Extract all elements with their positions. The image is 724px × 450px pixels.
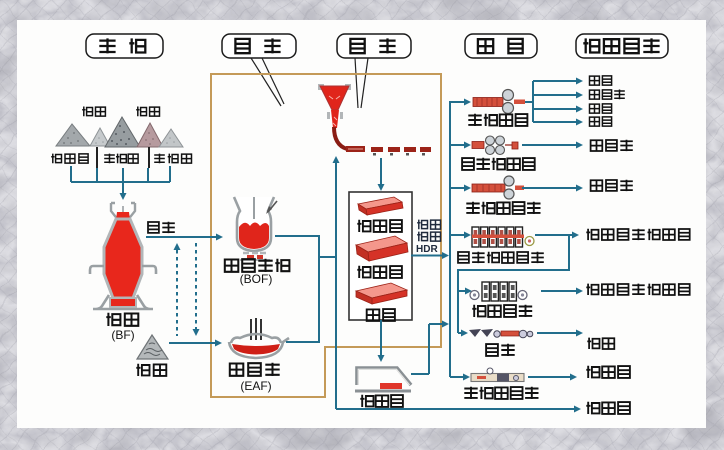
svg-text:(BF): (BF) bbox=[111, 328, 134, 342]
svg-text:(EAF): (EAF) bbox=[240, 379, 271, 393]
svg-text:HDR: HDR bbox=[416, 244, 438, 255]
svg-text:(BOF): (BOF) bbox=[240, 272, 273, 286]
